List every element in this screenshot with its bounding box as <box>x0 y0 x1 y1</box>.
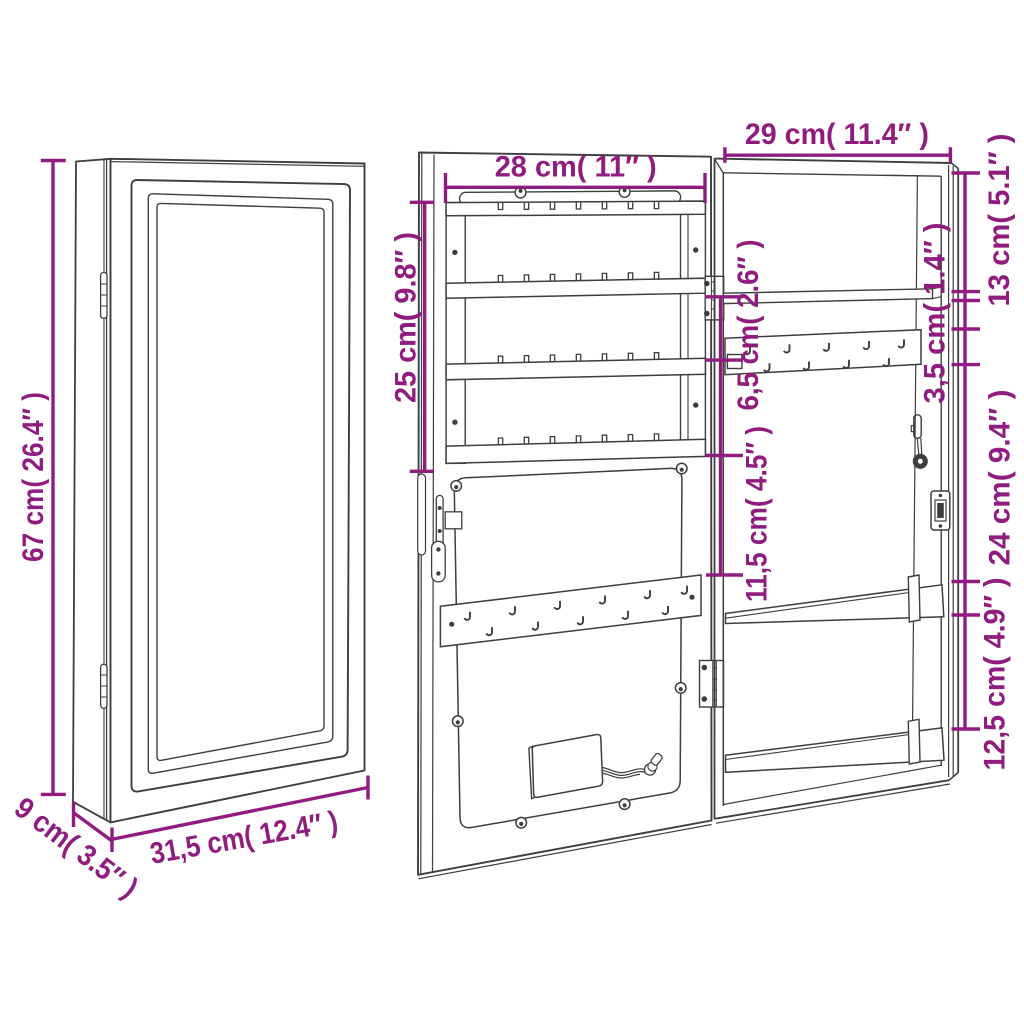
svg-text:28 cm( 11″ ): 28 cm( 11″ ) <box>495 151 657 184</box>
svg-text:3,5 cm( 1.4″ ): 3,5 cm( 1.4″ ) <box>919 223 952 404</box>
svg-text:25 cm( 9.8″ ): 25 cm( 9.8″ ) <box>390 232 423 403</box>
svg-text:67 cm( 26.4″ ): 67 cm( 26.4″ ) <box>17 392 50 562</box>
svg-text:12,5 cm( 4.9″ ): 12,5 cm( 4.9″ ) <box>979 578 1012 771</box>
svg-text:11,5 cm( 4.5″ ): 11,5 cm( 4.5″ ) <box>741 426 774 602</box>
svg-text:13 cm( 5.1″ ): 13 cm( 5.1″ ) <box>983 134 1016 307</box>
svg-text:24 cm( 9.4″ ): 24 cm( 9.4″ ) <box>984 390 1017 566</box>
svg-text:6,5 cm( 2.6″ ): 6,5 cm( 2.6″ ) <box>732 240 765 411</box>
svg-text:29 cm( 11.4″ ): 29 cm( 11.4″ ) <box>745 118 929 151</box>
